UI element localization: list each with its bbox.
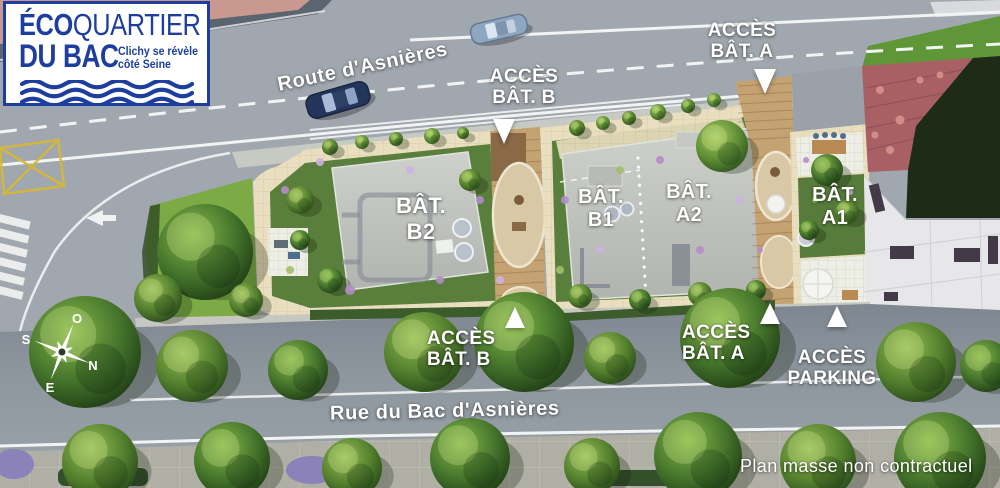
site-plan: O S N E Route d'Asnières Rue du Bac d'As… [0, 0, 1000, 488]
access-marker-bottom-bat-b [505, 307, 525, 328]
access-marker-top-bat-b [493, 119, 515, 144]
logo-waves-icon [20, 80, 194, 106]
skylight-dome [455, 243, 473, 261]
logo-tagline: Clichy se révèle côté Seine [118, 46, 198, 72]
access-marker-bottom-bat-a [760, 303, 780, 324]
deck-oval-patio [493, 163, 545, 267]
logo-subtitle: DU BAC [19, 40, 119, 72]
access-label-bottom-bat-b: ACCÈS BÂT. B [427, 328, 496, 370]
logo-ecoquartier-du-bac: ÉCOQUARTIER DU BAC Clichy se révèle côté… [3, 1, 210, 106]
access-marker-top-bat-a [754, 69, 776, 94]
compass-south: S [22, 332, 31, 347]
access-label-top-bat-a: ACCÈS BÂT. A [686, 20, 798, 62]
access-label-top-bat-b: ACCÈS BÂT. B [468, 66, 580, 108]
compass-west: O [72, 311, 82, 326]
building-label-b2: BÂT. B2 [368, 193, 474, 245]
outdoor-table [812, 140, 846, 154]
access-label-bottom-bat-a: ACCÈS BÂT. A [682, 322, 751, 364]
disclaimer-text: Plan masse non contractuel [740, 456, 973, 477]
compass-east: E [46, 380, 55, 395]
access-label-parking: ACCÈS PARKING [778, 347, 886, 389]
deck-walkway-b [490, 127, 546, 319]
logo-title: ÉCOQUARTIER [19, 8, 200, 41]
compass-north: N [88, 358, 97, 373]
access-marker-parking [827, 306, 847, 327]
building-label-a1: BÂT. A1 [782, 184, 888, 230]
building-label-a2: BÂT. A2 [636, 181, 742, 227]
